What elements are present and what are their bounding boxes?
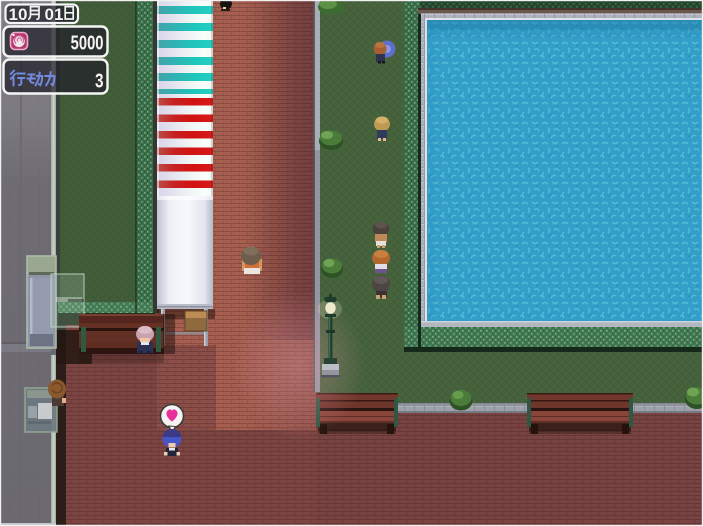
svg-text:10: 10 <box>9 5 28 24</box>
svg-text:3: 3 <box>95 69 104 92</box>
svg-text:01: 01 <box>45 5 64 24</box>
svg-text:5000: 5000 <box>71 31 104 54</box>
